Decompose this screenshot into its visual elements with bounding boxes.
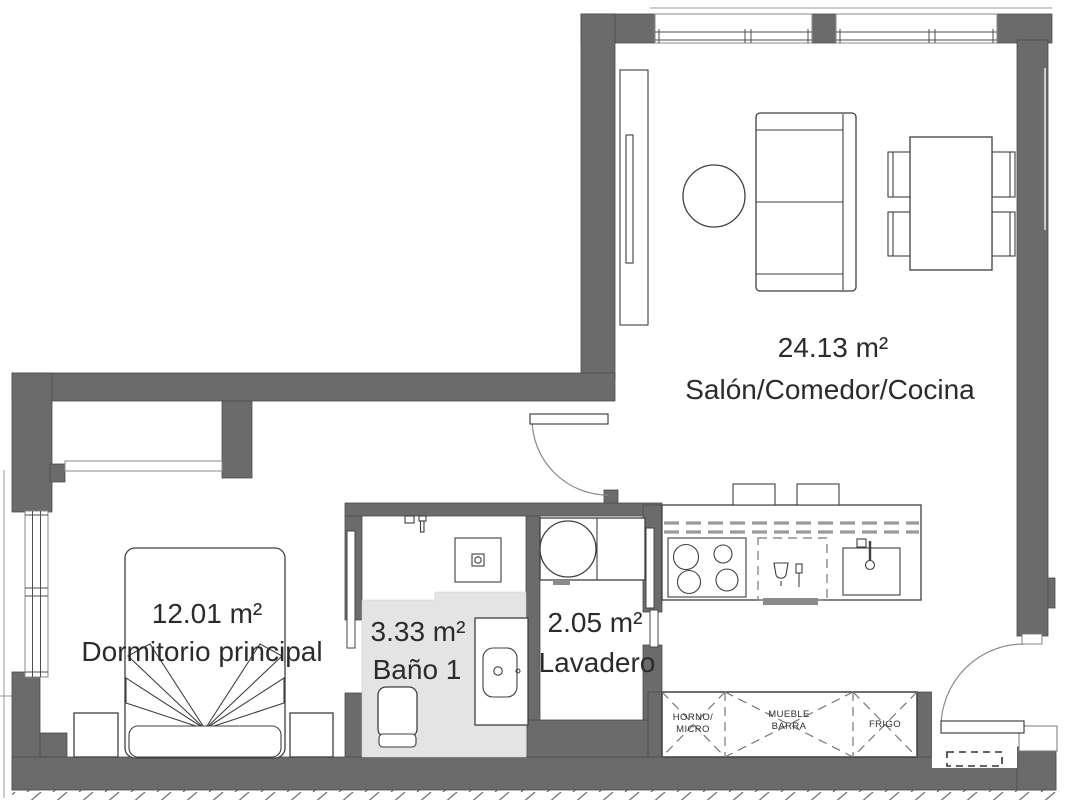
wall-living-west xyxy=(581,14,615,378)
living-room-name: Salón/Comedor/Cocina xyxy=(685,374,975,405)
wall-bath-north xyxy=(345,503,662,516)
wall-bottom xyxy=(12,757,1056,790)
entry-door-leaf xyxy=(941,721,1024,733)
floor-plan-canvas: HORNO/ MICRO MUEBLE BARRA FRIGO 24.13 m²… xyxy=(0,0,1068,800)
laundry-room-name: Lavadero xyxy=(539,647,656,678)
svg-text:MUEBLE: MUEBLE xyxy=(768,709,809,720)
wall-laundry-south xyxy=(527,720,662,757)
shower-head-icon xyxy=(405,516,426,532)
shower xyxy=(455,538,501,582)
dining-table xyxy=(910,137,992,270)
wall-cabinet-1 xyxy=(733,484,775,505)
svg-text:BARRA: BARRA xyxy=(772,721,807,732)
kitchen xyxy=(662,484,921,605)
wall-notch xyxy=(50,464,65,482)
dining-chair xyxy=(992,212,1015,256)
round-table xyxy=(683,165,745,227)
wall-right-bump xyxy=(1048,578,1055,608)
faucet-base-icon xyxy=(857,539,866,547)
laundry-fixtures xyxy=(540,518,645,585)
wall-left-step xyxy=(40,733,67,757)
tall-cabinet-row: HORNO/ MICRO MUEBLE BARRA FRIGO xyxy=(662,692,917,757)
wall-bedroom-north xyxy=(12,373,615,401)
room-label-laundry: 2.05 m² Lavadero xyxy=(539,607,656,678)
living-window-1 xyxy=(655,14,812,43)
gallery-window xyxy=(65,461,222,471)
living-window-2 xyxy=(836,14,997,43)
entry-step xyxy=(1019,726,1057,751)
entry xyxy=(932,634,1057,768)
dining-chair xyxy=(992,152,1015,197)
interior-door-living xyxy=(530,414,608,495)
wall-entry-corner xyxy=(1017,747,1056,790)
basin-drain-icon xyxy=(494,667,502,675)
laundry-area-value: 2.05 m² xyxy=(548,607,643,638)
shower-drain-icon xyxy=(472,554,484,566)
wall-left-upper xyxy=(12,373,52,512)
wall-cabinet-pier-right xyxy=(917,692,932,757)
svg-text:MICRO: MICRO xyxy=(676,724,710,735)
dining-set xyxy=(888,137,1015,270)
bedroom-window xyxy=(25,511,48,677)
svg-text:HORNO/: HORNO/ xyxy=(673,712,713,723)
wall-cabinet-pier-left xyxy=(648,692,662,757)
bathroom-pocket-door xyxy=(347,531,355,648)
pillow xyxy=(129,726,281,757)
vanity-sink xyxy=(475,618,528,725)
dining-chair xyxy=(888,152,911,197)
cabinet-label-mueble-barra: MUEBLE BARRA xyxy=(768,709,809,732)
sofa xyxy=(756,113,856,291)
wall-gallery-pier xyxy=(222,401,252,478)
cabinet-label-frigo: FRIGO xyxy=(869,719,901,730)
wall-right xyxy=(1017,40,1048,636)
washing-machine xyxy=(540,521,596,577)
bedroom-room-name: Dormitorio principal xyxy=(81,636,322,667)
toilet xyxy=(378,687,417,747)
room-label-living: 24.13 m² Salón/Comedor/Cocina xyxy=(685,332,975,405)
bathroom-room-name: Baño 1 xyxy=(373,654,462,685)
interior-door-leaf xyxy=(530,414,608,424)
wall-top-right xyxy=(997,14,1052,43)
bedroom-area-value: 12.01 m² xyxy=(152,598,263,629)
floor-plan: HORNO/ MICRO MUEBLE BARRA FRIGO 24.13 m²… xyxy=(0,0,1068,800)
nightstand-right xyxy=(290,713,333,757)
tv-unit xyxy=(620,70,648,325)
cabinet-label-horno-micro: HORNO/ MICRO xyxy=(673,712,713,735)
nightstand-left xyxy=(74,713,118,757)
wall-window-pier xyxy=(812,14,836,43)
bathroom-area-value: 3.33 m² xyxy=(371,616,466,647)
living-area-value: 24.13 m² xyxy=(778,332,889,363)
living-furniture xyxy=(620,70,1015,325)
wall-cabinet-2 xyxy=(797,484,839,505)
wall-bath-west-lower xyxy=(345,693,362,757)
entry-door-frame xyxy=(1022,634,1042,644)
dining-chair xyxy=(888,212,911,256)
cooktop xyxy=(668,538,746,597)
wall-door-stub xyxy=(604,490,618,503)
